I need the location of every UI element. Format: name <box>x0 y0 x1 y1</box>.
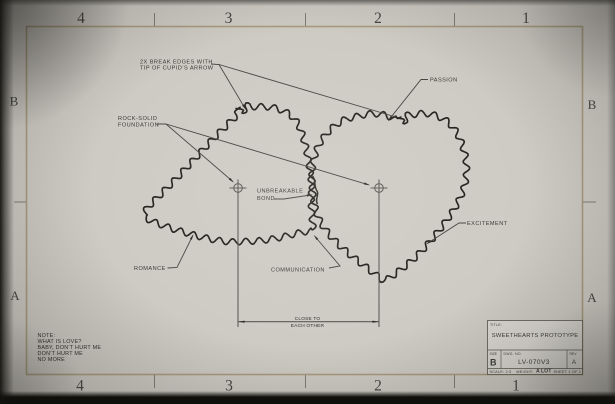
svg-text:SIZE: SIZE <box>490 352 498 356</box>
svg-text:LV-070V3: LV-070V3 <box>518 359 550 366</box>
svg-text:PASSION: PASSION <box>430 78 458 84</box>
svg-text:B: B <box>10 94 19 109</box>
svg-text:FOUNDATION: FOUNDATION <box>118 123 159 129</box>
svg-text:NO MORE: NO MORE <box>38 357 66 363</box>
svg-text:UNBREAKABLE: UNBREAKABLE <box>257 189 303 195</box>
svg-text:A LOT: A LOT <box>536 369 552 375</box>
svg-text:ROCK-SOLID: ROCK-SOLID <box>118 116 157 122</box>
svg-text:1: 1 <box>512 378 520 395</box>
svg-text:EXCITEMENT: EXCITEMENT <box>467 221 508 227</box>
svg-text:1: 1 <box>522 10 530 27</box>
svg-text:A: A <box>10 288 20 303</box>
svg-text:B: B <box>588 97 597 112</box>
svg-text:SHEET 1 OF 1: SHEET 1 OF 1 <box>554 370 582 374</box>
svg-text:A: A <box>587 290 597 305</box>
svg-text:TITLE:: TITLE: <box>490 323 502 327</box>
svg-text:ROMANCE: ROMANCE <box>134 266 166 272</box>
svg-text:TIP OF CUPID’S ARROW: TIP OF CUPID’S ARROW <box>140 66 214 72</box>
svg-text:CLOSE TO: CLOSE TO <box>295 316 321 322</box>
svg-text:EACH OTHER: EACH OTHER <box>291 323 325 329</box>
svg-text:4: 4 <box>77 10 85 27</box>
svg-text:2: 2 <box>374 10 382 27</box>
svg-text:BOND: BOND <box>257 196 275 202</box>
svg-text:WEIGHT:: WEIGHT: <box>516 370 533 374</box>
svg-text:3: 3 <box>225 378 233 395</box>
svg-text:SCALE: 2:3: SCALE: 2:3 <box>490 370 512 374</box>
svg-text:DWG. NO.: DWG. NO. <box>504 352 523 356</box>
svg-text:4: 4 <box>76 378 84 395</box>
svg-text:REV: REV <box>570 352 578 356</box>
svg-text:2: 2 <box>374 378 382 395</box>
svg-text:COMMUNICATION: COMMUNICATION <box>271 267 325 273</box>
svg-text:3: 3 <box>225 10 233 27</box>
svg-text:SWEETHEARTS PROTOTYPE: SWEETHEARTS PROTOTYPE <box>492 333 579 339</box>
svg-text:B: B <box>490 358 497 368</box>
